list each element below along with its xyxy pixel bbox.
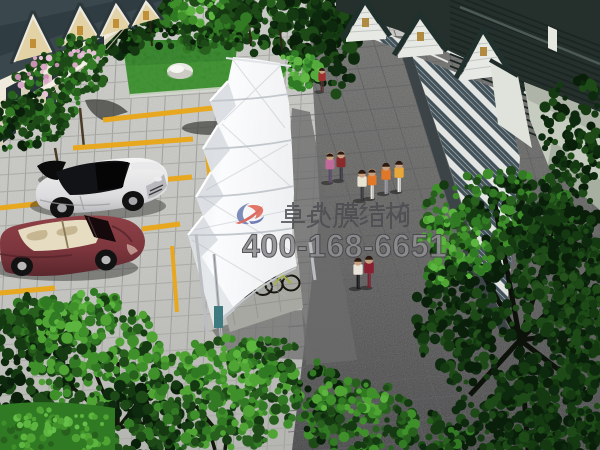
svg-text:400-168-6651: 400-168-6651 [242, 228, 447, 264]
